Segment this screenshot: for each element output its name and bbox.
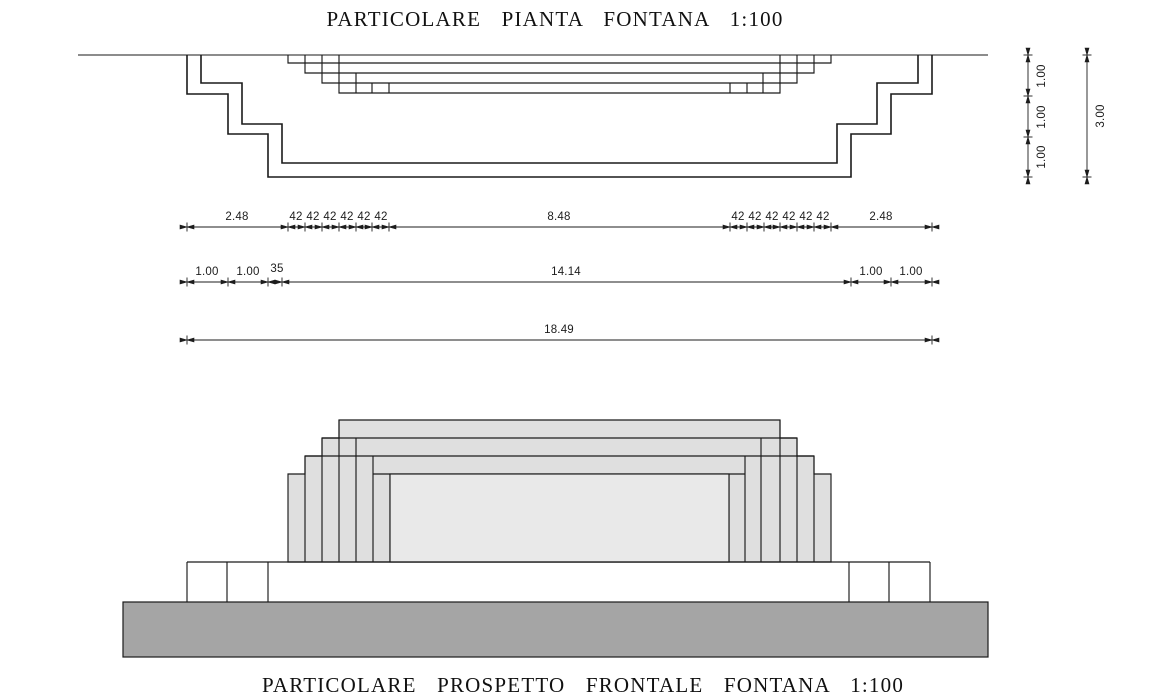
dim-label: 1.00	[236, 266, 259, 278]
basin-wall-right	[849, 562, 930, 602]
dim-label: 42	[374, 211, 387, 223]
dim-label: 2.48	[225, 211, 248, 223]
elevation-view: PARTICOLARE PROSPETTO FRONTALE FONTANA 1…	[123, 420, 988, 697]
dim-label: 1.00	[1036, 145, 1048, 168]
dim-label: 8.48	[547, 211, 570, 223]
plan-central-tiers	[288, 55, 831, 93]
plan-vertical-dimensions: 1.00 1.00 1.00 3.00	[1028, 55, 1107, 177]
dim-label: 42	[799, 211, 812, 223]
dim-label: 42	[289, 211, 302, 223]
dim-label: 1.00	[859, 266, 882, 278]
plan-view: PARTICOLARE PIANTA FONTANA 1:100 2.48 42	[78, 7, 1107, 345]
plan-tier-4	[339, 55, 780, 93]
plan-dim-row2-labels: 1.00 1.00 35 14.14 1.00 1.00	[195, 263, 922, 278]
dim-label: 1.00	[899, 266, 922, 278]
dim-label: 42	[306, 211, 319, 223]
plan-tier-1	[288, 55, 831, 63]
dim-label: 2.48	[869, 211, 892, 223]
elevation-title: PARTICOLARE PROSPETTO FRONTALE FONTANA 1…	[262, 673, 904, 697]
basin-wall-left	[187, 562, 268, 602]
dim-label: 42	[765, 211, 778, 223]
dim-label: 42	[731, 211, 744, 223]
dim-label: 42	[357, 211, 370, 223]
dim-label: 1.00	[195, 266, 218, 278]
plan-tier-2	[305, 55, 814, 73]
dim-label: 42	[748, 211, 761, 223]
dim-label: 1.00	[1036, 105, 1048, 128]
elevation-front-tier	[390, 474, 729, 562]
elevation-ground-slab	[123, 602, 988, 657]
technical-drawing-canvas: PARTICOLARE PIANTA FONTANA 1:100 2.48 42	[0, 0, 1170, 700]
elevation-basin	[187, 562, 930, 602]
dim-label: 42	[782, 211, 795, 223]
dim-label: 14.14	[551, 266, 581, 278]
dim-label: 42	[323, 211, 336, 223]
drawing-sheet: PARTICOLARE PIANTA FONTANA 1:100 2.48 42	[0, 0, 1170, 700]
dim-label-total-width: 18.49	[544, 324, 574, 336]
dim-label-total-depth: 3.00	[1095, 104, 1107, 127]
plan-title: PARTICOLARE PIANTA FONTANA 1:100	[326, 7, 783, 31]
dim-label: 35	[270, 263, 283, 275]
plan-tier-3	[322, 55, 797, 83]
plan-dim-row1-labels: 2.48 42 42 42 42 42 42 8.48 42 42 42 42 …	[225, 211, 892, 223]
plan-pool-inner-wall	[201, 55, 918, 163]
dim-label: 42	[816, 211, 829, 223]
dim-label: 1.00	[1036, 64, 1048, 87]
dim-label: 42	[340, 211, 353, 223]
